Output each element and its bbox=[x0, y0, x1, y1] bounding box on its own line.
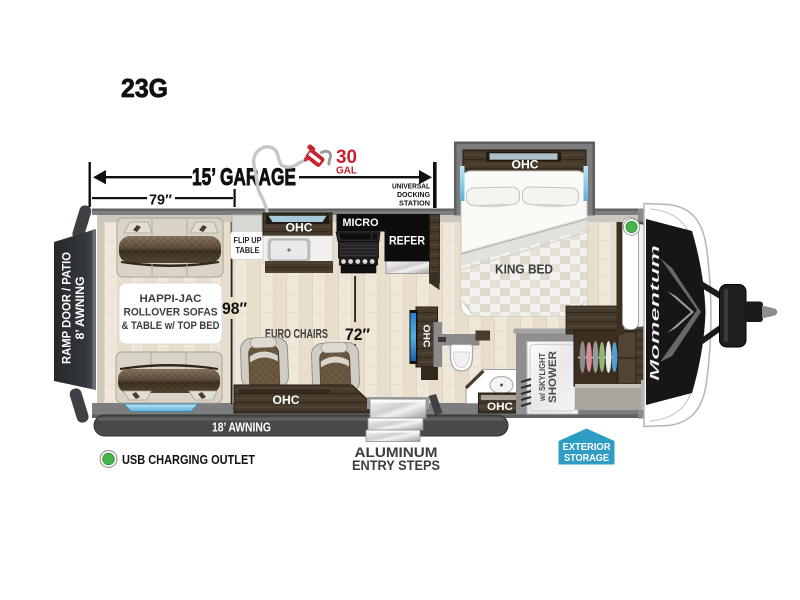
svg-text:15’ GARAGE: 15’ GARAGE bbox=[192, 164, 296, 191]
svg-text:EXTERIOR: EXTERIOR bbox=[563, 442, 612, 453]
svg-text:OHC: OHC bbox=[286, 223, 313, 235]
svg-text:HAPPI-JAC: HAPPI-JAC bbox=[140, 293, 202, 305]
svg-text:KING BED: KING BED bbox=[495, 262, 553, 277]
svg-text:RAMP DOOR / PATIO: RAMP DOOR / PATIO bbox=[62, 252, 74, 364]
svg-text:OHC: OHC bbox=[512, 160, 539, 172]
svg-text:ROLLOVER SOFAS: ROLLOVER SOFAS bbox=[124, 307, 218, 319]
svg-text:79″: 79″ bbox=[149, 193, 172, 209]
svg-text:18’ AWNING: 18’ AWNING bbox=[212, 421, 271, 435]
svg-text:w/ SKYLIGHT: w/ SKYLIGHT bbox=[537, 352, 547, 402]
svg-text:OHC: OHC bbox=[421, 325, 432, 348]
svg-text:ENTRY STEPS: ENTRY STEPS bbox=[352, 458, 440, 473]
svg-text:TABLE: TABLE bbox=[236, 246, 261, 255]
svg-text:FLIP UP: FLIP UP bbox=[234, 236, 263, 245]
svg-text:Momentum: Momentum bbox=[648, 245, 662, 381]
svg-text:STATION: STATION bbox=[399, 199, 430, 208]
svg-text:98″: 98″ bbox=[222, 300, 247, 318]
svg-text:GAL: GAL bbox=[336, 165, 358, 177]
svg-text:STORAGE: STORAGE bbox=[564, 453, 609, 464]
svg-text:23G: 23G bbox=[121, 73, 168, 103]
svg-text:MICRO: MICRO bbox=[343, 217, 379, 229]
svg-text:SHOWER: SHOWER bbox=[547, 351, 559, 403]
svg-text:REFER: REFER bbox=[389, 236, 426, 248]
svg-text:USB CHARGING OUTLET: USB CHARGING OUTLET bbox=[122, 453, 255, 467]
svg-text:OHC: OHC bbox=[273, 395, 300, 407]
svg-text:8’ AWNING: 8’ AWNING bbox=[75, 276, 87, 339]
svg-text:& TABLE w/ TOP BED: & TABLE w/ TOP BED bbox=[122, 320, 220, 332]
svg-text:72″: 72″ bbox=[345, 326, 370, 344]
svg-text:OHC: OHC bbox=[487, 401, 513, 413]
